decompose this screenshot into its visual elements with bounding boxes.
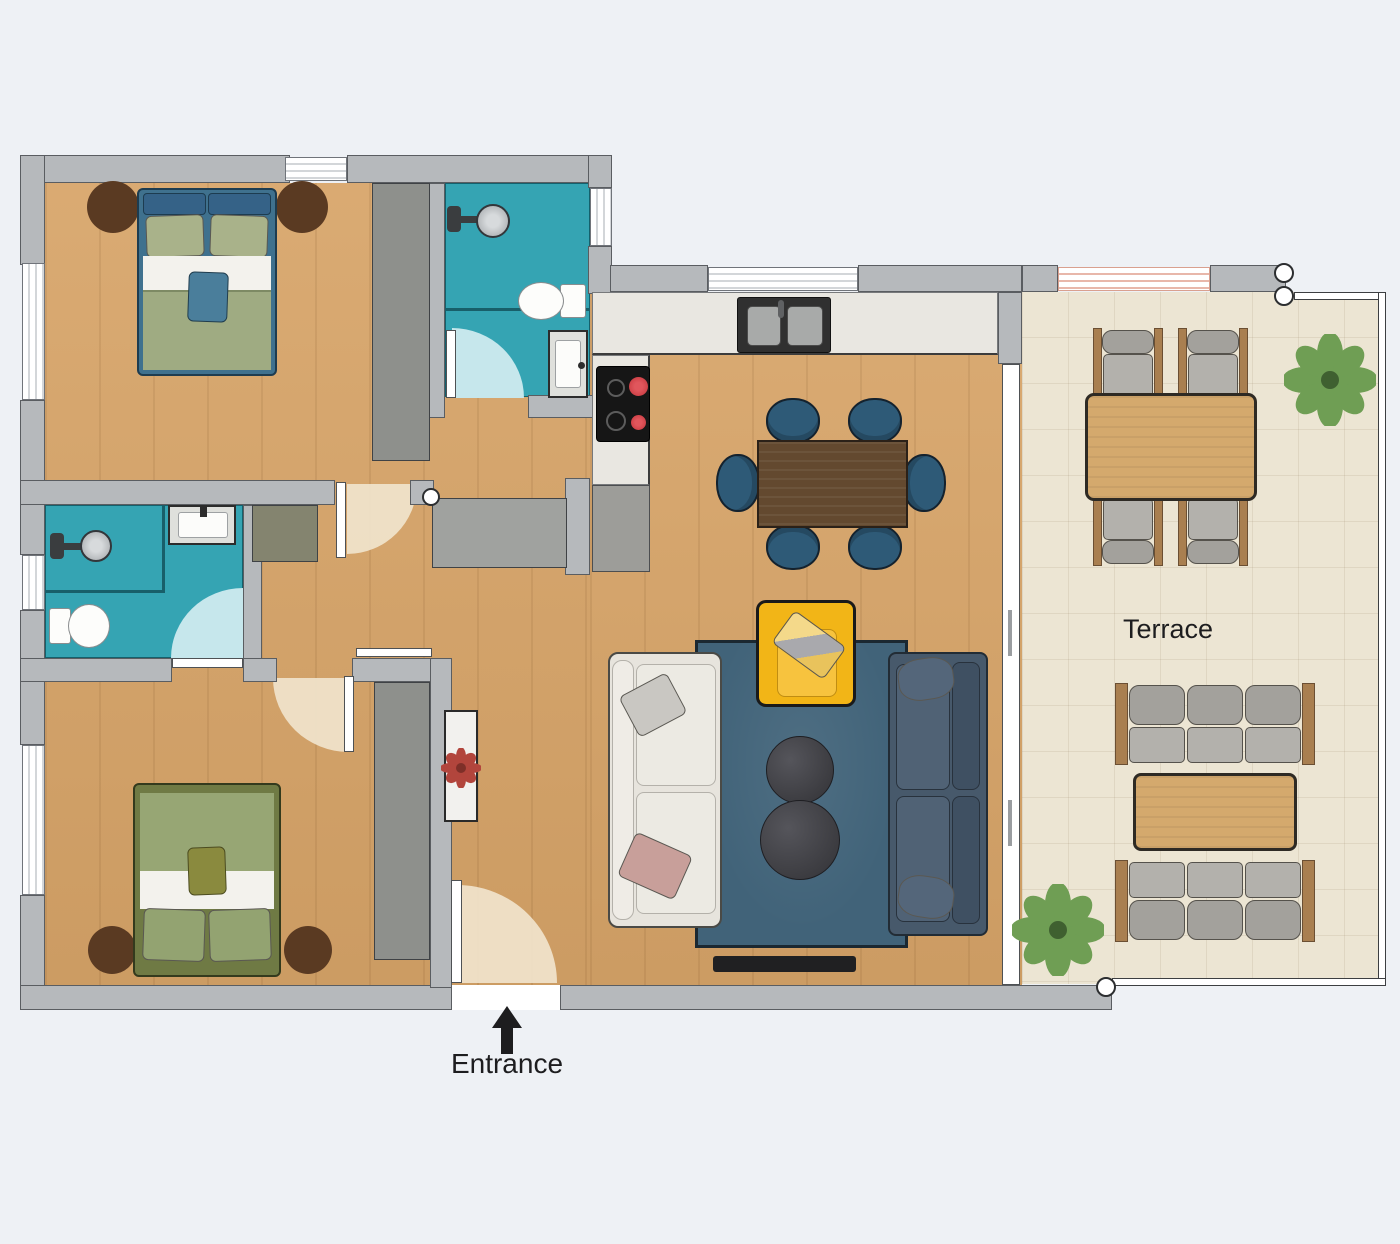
bed-top-headboard-right — [208, 193, 271, 215]
wall-hall-junction — [565, 478, 590, 575]
sofa-arm-right — [1302, 683, 1315, 765]
sofa-seat-2 — [1187, 727, 1243, 763]
door-leaf-bedroom-bottom — [344, 676, 354, 752]
terrace-label: Terrace — [1068, 614, 1268, 648]
sofa-arm-left — [1115, 860, 1128, 942]
wall-top-left-a — [20, 155, 290, 183]
sofa-blue-back-bottom — [952, 796, 980, 924]
toilet-top — [518, 280, 588, 322]
dining-chair-bottom-left — [766, 524, 820, 570]
nightstand-bottom-left — [88, 926, 136, 974]
chair-arm-right — [1154, 498, 1163, 566]
sofa-seat-1 — [1129, 862, 1185, 898]
wall-bedroom-bottom-top — [352, 658, 440, 682]
chair-seat — [1188, 498, 1238, 540]
entrance-label: Entrance — [427, 1048, 587, 1082]
terrace-sofa-bottom — [1115, 860, 1315, 942]
shower-head-left — [80, 530, 112, 562]
dining-chair-left — [716, 454, 760, 512]
chair-arm-right — [1154, 328, 1163, 398]
toilet-left — [47, 602, 111, 650]
coffee-table-large — [760, 800, 840, 880]
wall-kitchen-top-b — [858, 265, 1022, 292]
bed-bottom-cushion — [187, 846, 227, 895]
window-bathroom-top-right — [590, 188, 612, 246]
chair-backrest — [1102, 540, 1154, 564]
wall-bottom-b — [560, 985, 1112, 1010]
nightstand-bottom-right — [284, 926, 332, 974]
wall-top-left-b — [347, 155, 612, 183]
stove-burner-back-right — [629, 377, 648, 396]
hinge-terrace-upper — [1274, 263, 1294, 283]
toilet-left-bowl — [68, 604, 110, 648]
chair-arm-right — [1239, 328, 1248, 398]
chair-arm-left — [1178, 498, 1187, 566]
chair-seat — [1103, 354, 1153, 398]
door-leaf-entrance — [451, 880, 462, 983]
wall-bathroom-top-right-a — [588, 155, 612, 188]
nightstand-top-right — [276, 181, 328, 233]
door-leaf-bathroom-left — [172, 658, 243, 668]
sofa-seat-3 — [1245, 727, 1301, 763]
bed-top-pillow-right — [209, 214, 268, 258]
sofa-arm-left — [1115, 683, 1128, 765]
terrace-rail-top — [1294, 292, 1386, 300]
closet-hall-small — [252, 505, 318, 562]
chair-arm-right — [1239, 498, 1248, 566]
sofa-back-1 — [1129, 685, 1185, 725]
terrace-dining-table — [1085, 393, 1257, 501]
stove-burner-front-right — [631, 415, 646, 430]
wall-bedroom-top-bottom — [20, 480, 335, 505]
kitchen-sink-unit — [737, 297, 831, 353]
hinge-bottom-wall — [1096, 977, 1116, 997]
chair-arm-left — [1093, 328, 1102, 398]
sink-basin-right — [787, 306, 823, 346]
tv-stand — [713, 956, 856, 972]
armchair-yellow — [756, 600, 856, 707]
door-threshold-bedroom-bottom — [356, 648, 432, 657]
window-bedroom-top-left — [22, 263, 45, 400]
stove-burner-front-left — [606, 411, 626, 431]
wall-bedroom-bottom-right — [430, 658, 452, 988]
sink-basin-left — [747, 306, 781, 346]
sink-bathroom-left — [168, 505, 236, 545]
bed-bottom-pillow-right — [208, 908, 272, 962]
sink-bathroom-left-faucet — [200, 507, 207, 517]
sofa-back-3 — [1245, 900, 1301, 940]
shower-partition-left-v — [162, 505, 165, 593]
wall-terrace-top-a — [1022, 265, 1058, 292]
hinge-wardrobe — [422, 488, 440, 506]
bed-bottom-pillow-left — [142, 908, 206, 962]
chair-seat — [1103, 498, 1153, 540]
window-bathroom-left — [22, 555, 45, 610]
window-kitchen-top — [708, 267, 858, 291]
terrace-chair-bottom-left — [1093, 498, 1163, 566]
dining-table — [757, 440, 908, 528]
chair-backrest — [1102, 330, 1154, 354]
dining-chair-bottom-right — [848, 524, 902, 570]
dining-chair-right — [902, 454, 946, 512]
window-bedroom-top-topwall — [285, 157, 347, 181]
sink-bathroom-top-faucet — [578, 362, 585, 369]
sofa-blue — [888, 652, 988, 936]
sofa-arm-right — [1302, 860, 1315, 942]
dining-chair-top-right — [848, 398, 902, 444]
plant-icon-terrace-bottom — [1012, 884, 1104, 976]
sliding-door-handle-top — [1008, 610, 1012, 656]
door-leaf-bathroom-top — [446, 330, 456, 398]
wall-bottom-a — [20, 985, 452, 1010]
chair-arm-left — [1093, 498, 1102, 566]
bed-top — [137, 188, 277, 376]
bed-top-headboard-left — [143, 193, 206, 215]
sofa-blue-back-top — [952, 662, 980, 790]
kitchen-stove — [596, 366, 650, 442]
kitchen-base-cabinet — [592, 485, 650, 572]
wall-left-d — [20, 895, 45, 995]
nightstand-top-left — [87, 181, 139, 233]
shower-head-top — [476, 204, 510, 238]
sofa-seat-1 — [1129, 727, 1185, 763]
terrace-rail-bottom — [1112, 978, 1386, 986]
wall-left-b — [20, 400, 45, 555]
sink-faucet — [778, 300, 784, 318]
terrace-chair-bottom-right — [1178, 498, 1248, 566]
chair-backrest — [1187, 330, 1239, 354]
sliding-door-handle-bottom — [1008, 800, 1012, 846]
coffee-table-small — [766, 736, 834, 804]
sofa-back-3 — [1245, 685, 1301, 725]
wall-bathroom-top-right-b — [588, 246, 612, 294]
plant-icon-terrace-top — [1284, 334, 1376, 426]
terrace-sofa-top — [1115, 683, 1315, 765]
hinge-terrace-lower — [1274, 286, 1294, 306]
toilet-top-bowl — [518, 282, 564, 320]
sofa-back-1 — [1129, 900, 1185, 940]
shower-mixer-left — [50, 533, 64, 559]
sofa-white — [608, 652, 722, 928]
sofa-seat-2 — [1187, 862, 1243, 898]
bed-top-pillow-left — [145, 214, 204, 258]
sofa-seat-3 — [1245, 862, 1301, 898]
dining-chair-top-left — [766, 398, 820, 444]
wall-living-right — [998, 292, 1022, 364]
flower-red-icon — [441, 748, 481, 788]
terrace-coffee-table — [1133, 773, 1297, 851]
entrance-arrow-icon — [489, 1006, 525, 1054]
closet-bedroom-bottom — [374, 682, 430, 960]
wall-kitchen-top-a — [610, 265, 708, 292]
floor-plan: Terrace Entrance — [0, 0, 1400, 1244]
stove-burner-back-left — [607, 379, 625, 397]
terrace-chair-top-right — [1178, 328, 1248, 398]
chair-seat — [1188, 354, 1238, 398]
wall-left-a — [20, 155, 45, 265]
wardrobe-hall — [432, 498, 567, 568]
terrace-rail-right — [1378, 292, 1386, 984]
shower-mixer-top — [447, 206, 461, 232]
sofa-back-2 — [1187, 900, 1243, 940]
door-leaf-bedroom-top — [336, 482, 346, 558]
window-terrace-top — [1058, 267, 1210, 291]
bed-top-cushion — [187, 271, 229, 322]
chair-backrest — [1187, 540, 1239, 564]
wall-bathroom-left-bottom-b — [243, 658, 277, 682]
chair-arm-left — [1178, 328, 1187, 398]
bed-bottom — [133, 783, 281, 977]
terrace-chair-top-left — [1093, 328, 1163, 398]
closet-bedroom-top — [372, 183, 430, 461]
wall-bathroom-left-bottom-a — [20, 658, 172, 682]
sink-bathroom-top — [548, 330, 588, 398]
window-bedroom-bottom-left — [22, 745, 45, 895]
shower-partition-left-h — [45, 590, 165, 593]
sofa-back-2 — [1187, 685, 1243, 725]
